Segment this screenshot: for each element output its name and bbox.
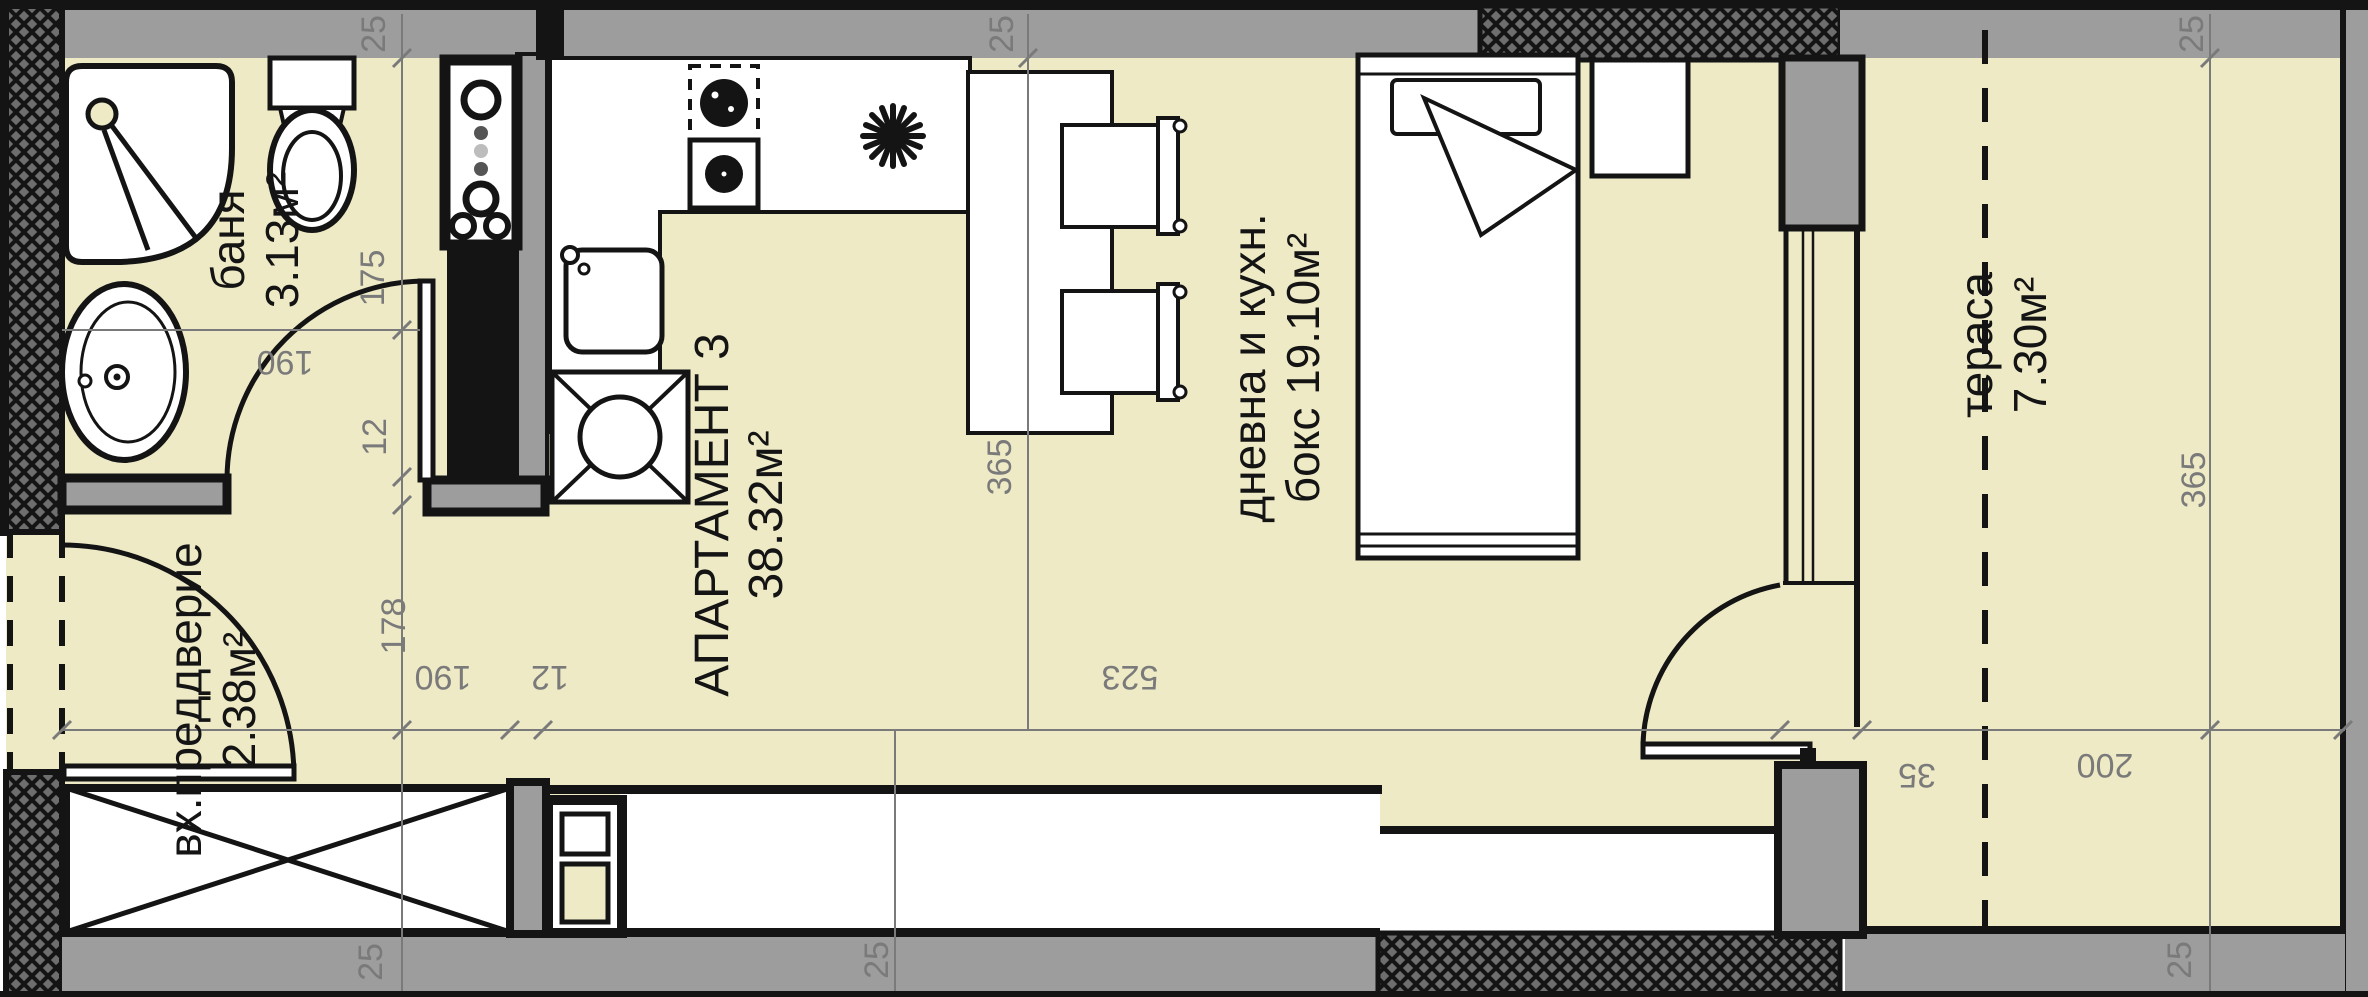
room-name: дневна и кухн. xyxy=(1222,213,1276,522)
dim-h-523: 523 xyxy=(1102,660,1159,694)
wall-top-right-gray xyxy=(1840,10,2345,58)
dim-bottom-right-25: 25 xyxy=(2163,941,2197,979)
dim-h-200: 200 xyxy=(2077,748,2134,782)
wall-right-divider xyxy=(2340,6,2346,997)
window-bottom-left xyxy=(620,794,1380,928)
dim-175: 175 xyxy=(356,250,390,307)
wall-bottom-edge xyxy=(0,991,2368,997)
bathroom-door-leaf xyxy=(420,281,433,480)
wall-top-edge xyxy=(0,0,2368,10)
washing-machine xyxy=(552,372,688,502)
radiator xyxy=(548,800,622,933)
floor-plan: баня 3.13м² вх.преддверие 2.38м² АПАРТАМ… xyxy=(0,0,2368,997)
cooktop-burner-1-dot-b xyxy=(728,106,734,112)
vent-dot-3 xyxy=(474,162,488,176)
wall-bath-bottom-left xyxy=(62,478,227,510)
nightstand xyxy=(1592,60,1688,176)
wall-top-pier xyxy=(536,6,564,60)
toilet-tank xyxy=(270,58,354,108)
washbasin-drain xyxy=(114,374,121,381)
vent-dot-1 xyxy=(474,126,488,140)
chair xyxy=(1062,284,1186,400)
room-name: тераса xyxy=(1949,272,2003,418)
dim-living-365: 365 xyxy=(983,439,1017,496)
window-bottom-right xyxy=(1380,834,1772,930)
vent-dot-2 xyxy=(474,144,488,158)
cooktop-burner-2-dot xyxy=(722,172,727,177)
kitchen-tap-small xyxy=(579,264,589,274)
wall-pier-below-door xyxy=(1778,765,1863,935)
kitchen-tap xyxy=(562,247,578,263)
dim-bath-190: 190 xyxy=(257,345,314,379)
wall-window-pier xyxy=(1782,58,1862,228)
wall-bottom-hatched xyxy=(1378,933,1840,995)
apartment-name: АПАРТАМЕНТ 3 xyxy=(686,333,740,697)
room-label-terrace: тераса 7.30м² xyxy=(1949,272,2057,418)
dim-bottom-left-25: 25 xyxy=(354,943,388,981)
room-name: вх.преддверие xyxy=(158,542,212,857)
dim-178: 178 xyxy=(377,598,411,655)
wall-terrace-bottom-gray xyxy=(1845,934,2345,993)
wardrobe xyxy=(66,788,510,932)
terrace-door-leaf xyxy=(1643,744,1810,757)
cooktop-burner-1-dot-a xyxy=(712,92,719,99)
dim-top-mid-25: 25 xyxy=(985,15,1019,53)
wall-bottom-gray xyxy=(62,937,1380,993)
floor-terrace xyxy=(1857,58,2345,933)
vent-flue-1 xyxy=(464,83,498,117)
dim-h-190: 190 xyxy=(415,660,472,694)
vent-flue-3 xyxy=(452,215,474,237)
room-area: 2.38м² xyxy=(212,542,266,857)
wall-left-hatched-upper xyxy=(6,6,62,532)
bed xyxy=(1358,55,1578,558)
dim-12-left: 12 xyxy=(358,418,392,456)
dim-top-right-25: 25 xyxy=(2175,15,2209,53)
vent-flue-2 xyxy=(466,184,496,214)
wall-right-gray xyxy=(2346,10,2368,993)
cooktop-burner-1 xyxy=(700,79,748,127)
floor-plan-svg xyxy=(0,0,2368,997)
apartment-label: АПАРТАМЕНТ 3 38.32м² xyxy=(686,333,794,697)
dim-top-left-25: 25 xyxy=(357,15,391,53)
wall-terrace-bottom-line xyxy=(1845,926,2345,934)
wall-top-gray xyxy=(28,10,1480,58)
chair xyxy=(1062,118,1186,234)
wall-left-hatched-lower xyxy=(6,772,62,994)
wall-pier-closet xyxy=(510,782,546,934)
room-label-entry: вх.преддверие 2.38м² xyxy=(158,542,266,857)
dim-h-35: 35 xyxy=(1898,758,1936,792)
wall-top-hatched xyxy=(1480,6,1840,60)
shower-head-icon xyxy=(88,100,116,128)
room-name: баня xyxy=(201,172,255,308)
room-area: 7.30м² xyxy=(2003,272,2057,418)
dim-h-12: 12 xyxy=(531,660,569,694)
wall-shaft-solid xyxy=(447,238,517,488)
room-area: бокс 19.10м² xyxy=(1276,213,1330,522)
room-label-living: дневна и кухн. бокс 19.10м² xyxy=(1222,213,1330,522)
wall-bath-bottom-right xyxy=(427,480,545,512)
room-area: 3.13м² xyxy=(255,172,309,308)
extractor-star-icon xyxy=(863,106,923,166)
room-label-bathroom: баня 3.13м² xyxy=(201,172,309,308)
dim-bottom-mid-25: 25 xyxy=(860,941,894,979)
floor-entry-recess xyxy=(6,528,62,778)
washbasin-tap-small xyxy=(79,375,91,387)
vent-flue-4 xyxy=(486,215,508,237)
dim-terrace-365: 365 xyxy=(2177,452,2211,509)
apartment-area: 38.32м² xyxy=(740,333,794,697)
